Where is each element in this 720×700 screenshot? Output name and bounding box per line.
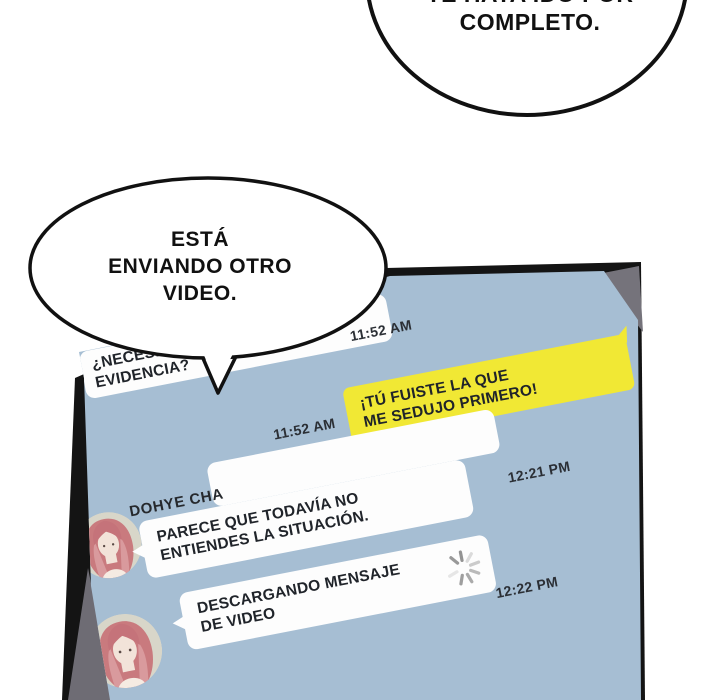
bubble-tail — [611, 326, 627, 344]
timestamp: 11:52 AM — [272, 415, 336, 443]
balloon-left-text: ESTÁ ENVIANDO OTRO VIDEO. — [86, 226, 314, 307]
balloon-line: ENVIANDO OTRO — [86, 253, 314, 280]
balloon-top-text: TE HAYA IDO POR COMPLETO. — [380, 0, 680, 36]
balloon-line: VIDEO. — [86, 280, 314, 307]
balloon-line-clipped: TE HAYA IDO POR — [380, 0, 680, 8]
balloon-line: ESTÁ — [86, 226, 314, 253]
loading-spinner-icon — [441, 546, 486, 591]
comic-panel: ¿NECESITAS EVIDENCIA? 11:52 AM ¡TÚ FUIST… — [0, 0, 720, 700]
phone-chat-screen: ¿NECESITAS EVIDENCIA? 11:52 AM ¡TÚ FUIST… — [0, 0, 720, 700]
timestamp: 12:21 PM — [507, 458, 572, 486]
message-bubble-received: ¿NECESITAS EVIDENCIA? — [78, 293, 393, 400]
balloon-line: COMPLETO. — [380, 8, 680, 36]
timestamp: 12:22 PM — [494, 573, 559, 601]
